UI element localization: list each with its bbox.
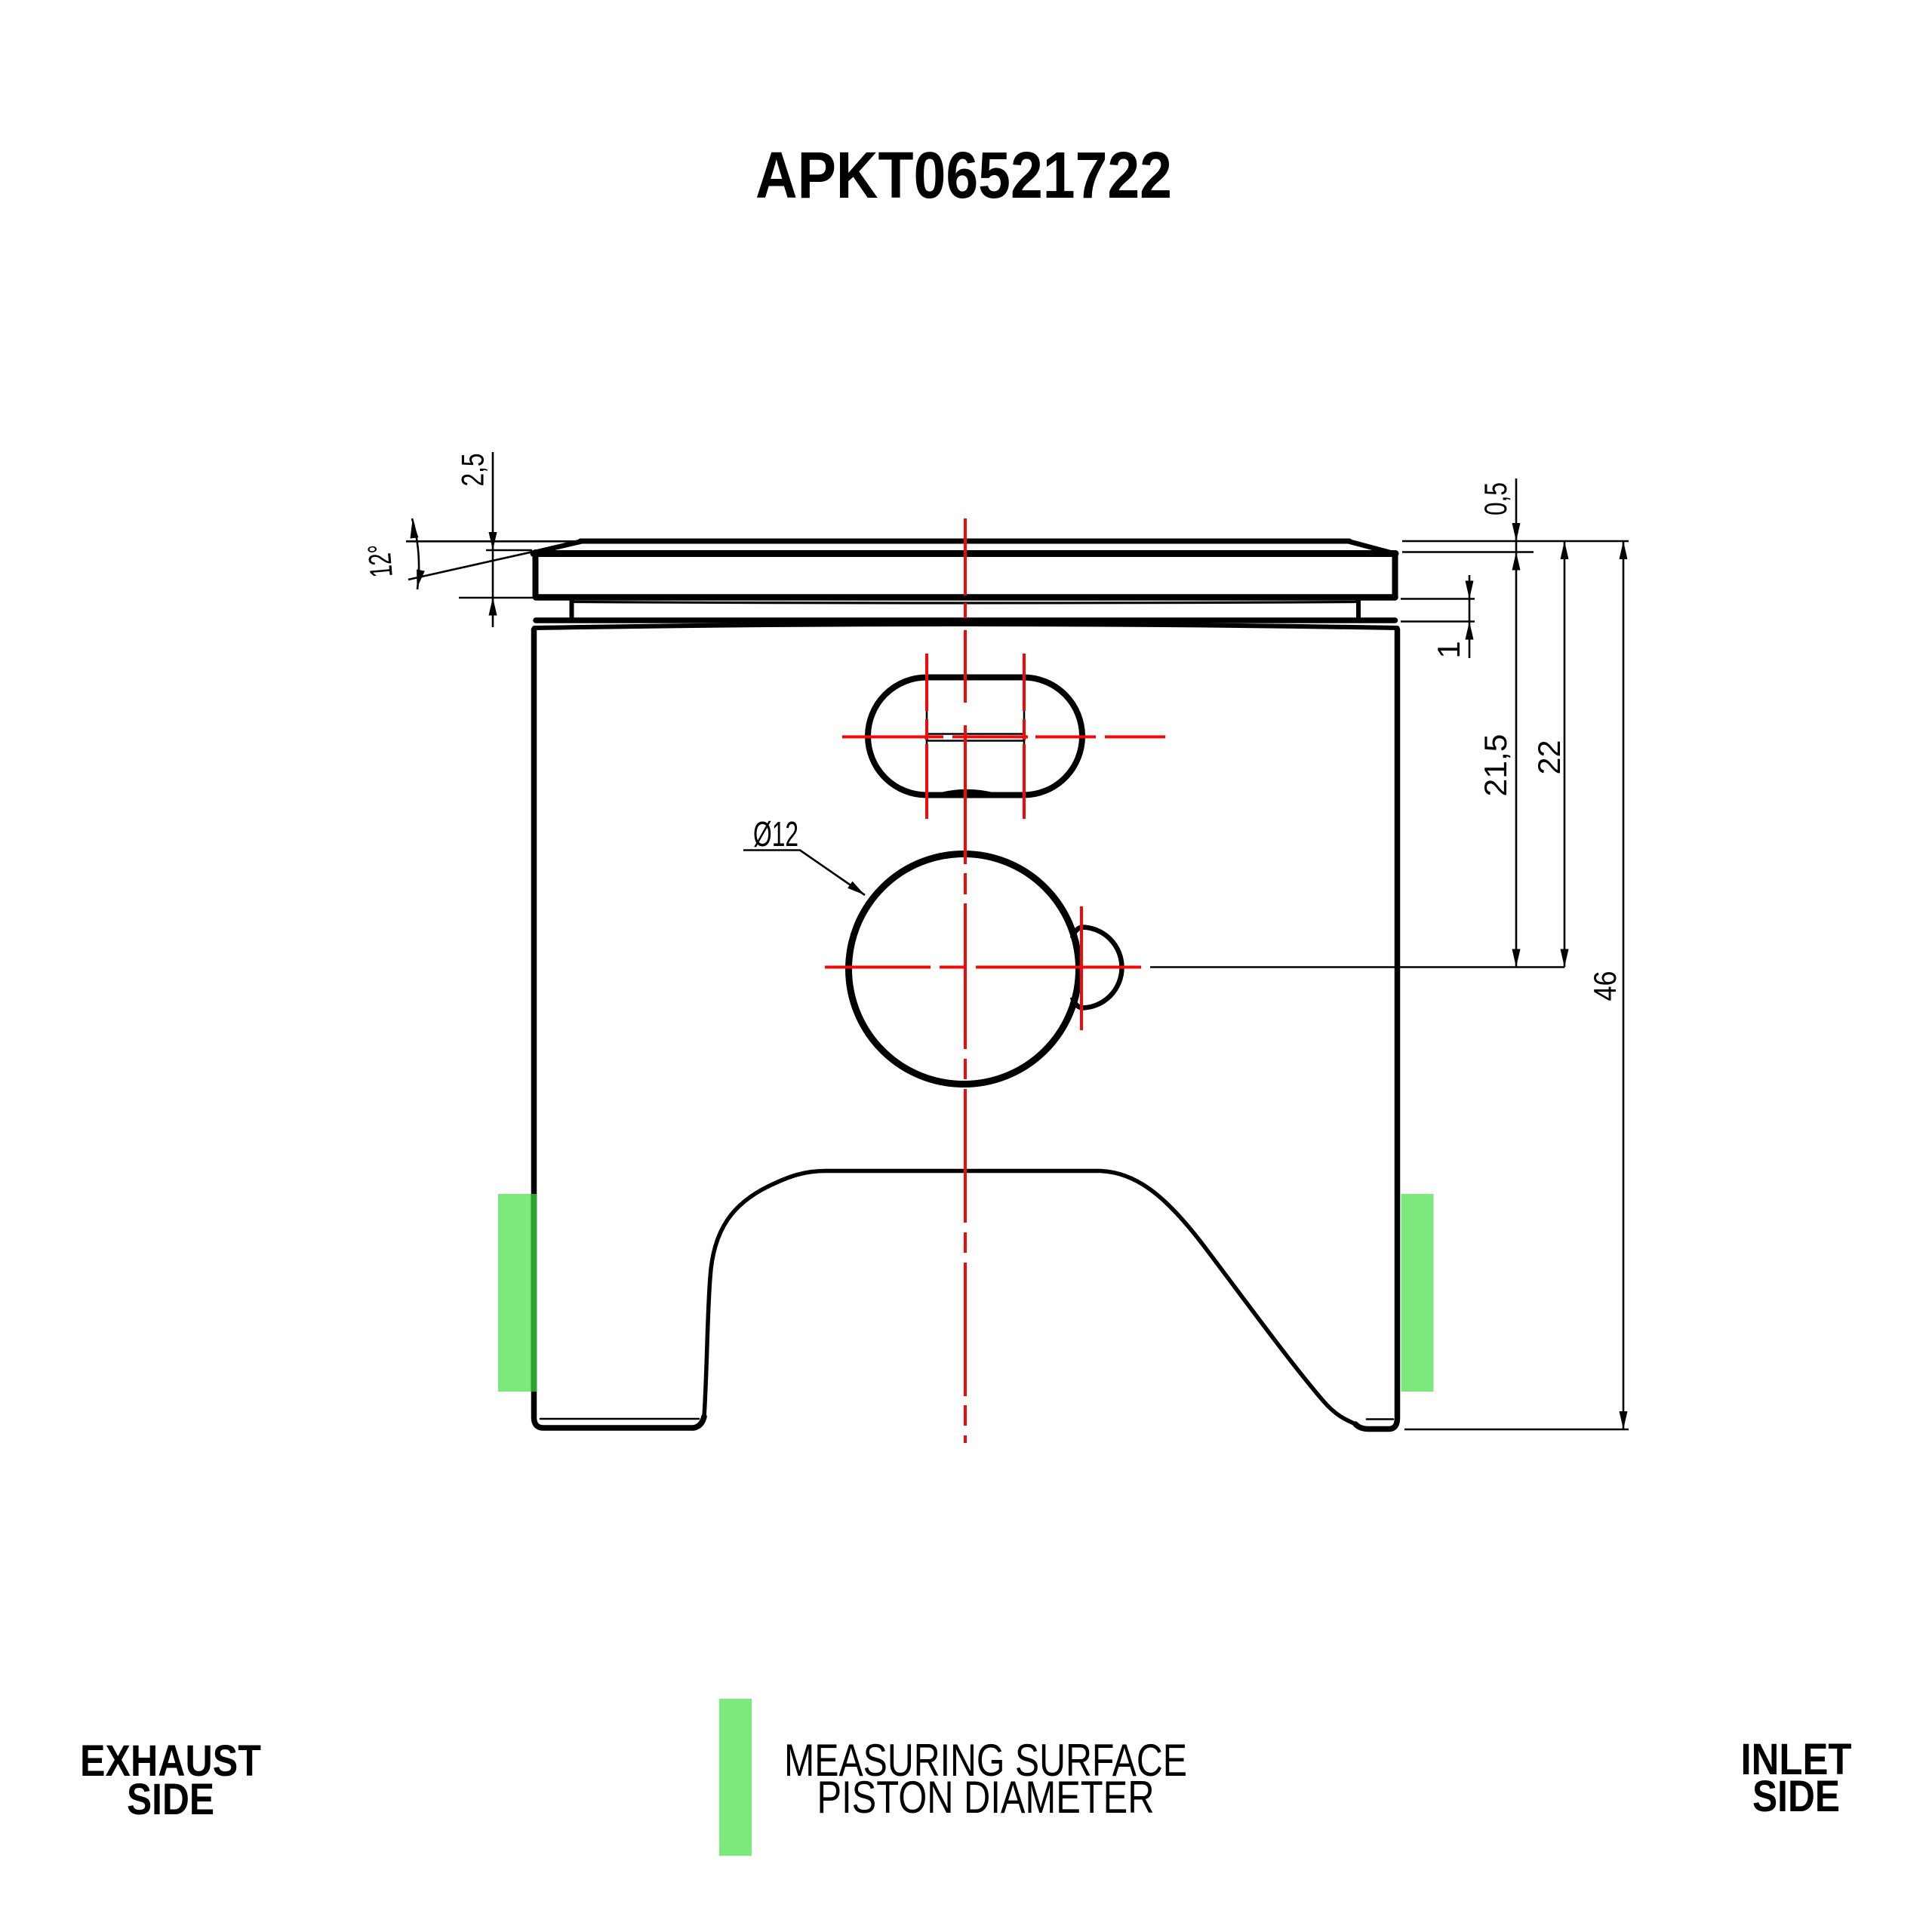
svg-text:2,5: 2,5 [455,454,491,487]
svg-text:SIDE: SIDE [1752,1772,1840,1821]
svg-text:1: 1 [1431,641,1466,658]
svg-text:0,5: 0,5 [1478,482,1513,515]
svg-text:46: 46 [1587,971,1623,1001]
svg-text:APKT06521722: APKT06521722 [755,139,1172,212]
svg-text:SIDE: SIDE [127,1775,214,1824]
svg-text:PISTON DIAMETER: PISTON DIAMETER [817,1772,1155,1823]
svg-text:22: 22 [1531,740,1567,775]
svg-text:Ø12: Ø12 [753,814,798,854]
svg-text:21,5: 21,5 [1478,734,1513,797]
svg-text:12°: 12° [361,543,399,579]
